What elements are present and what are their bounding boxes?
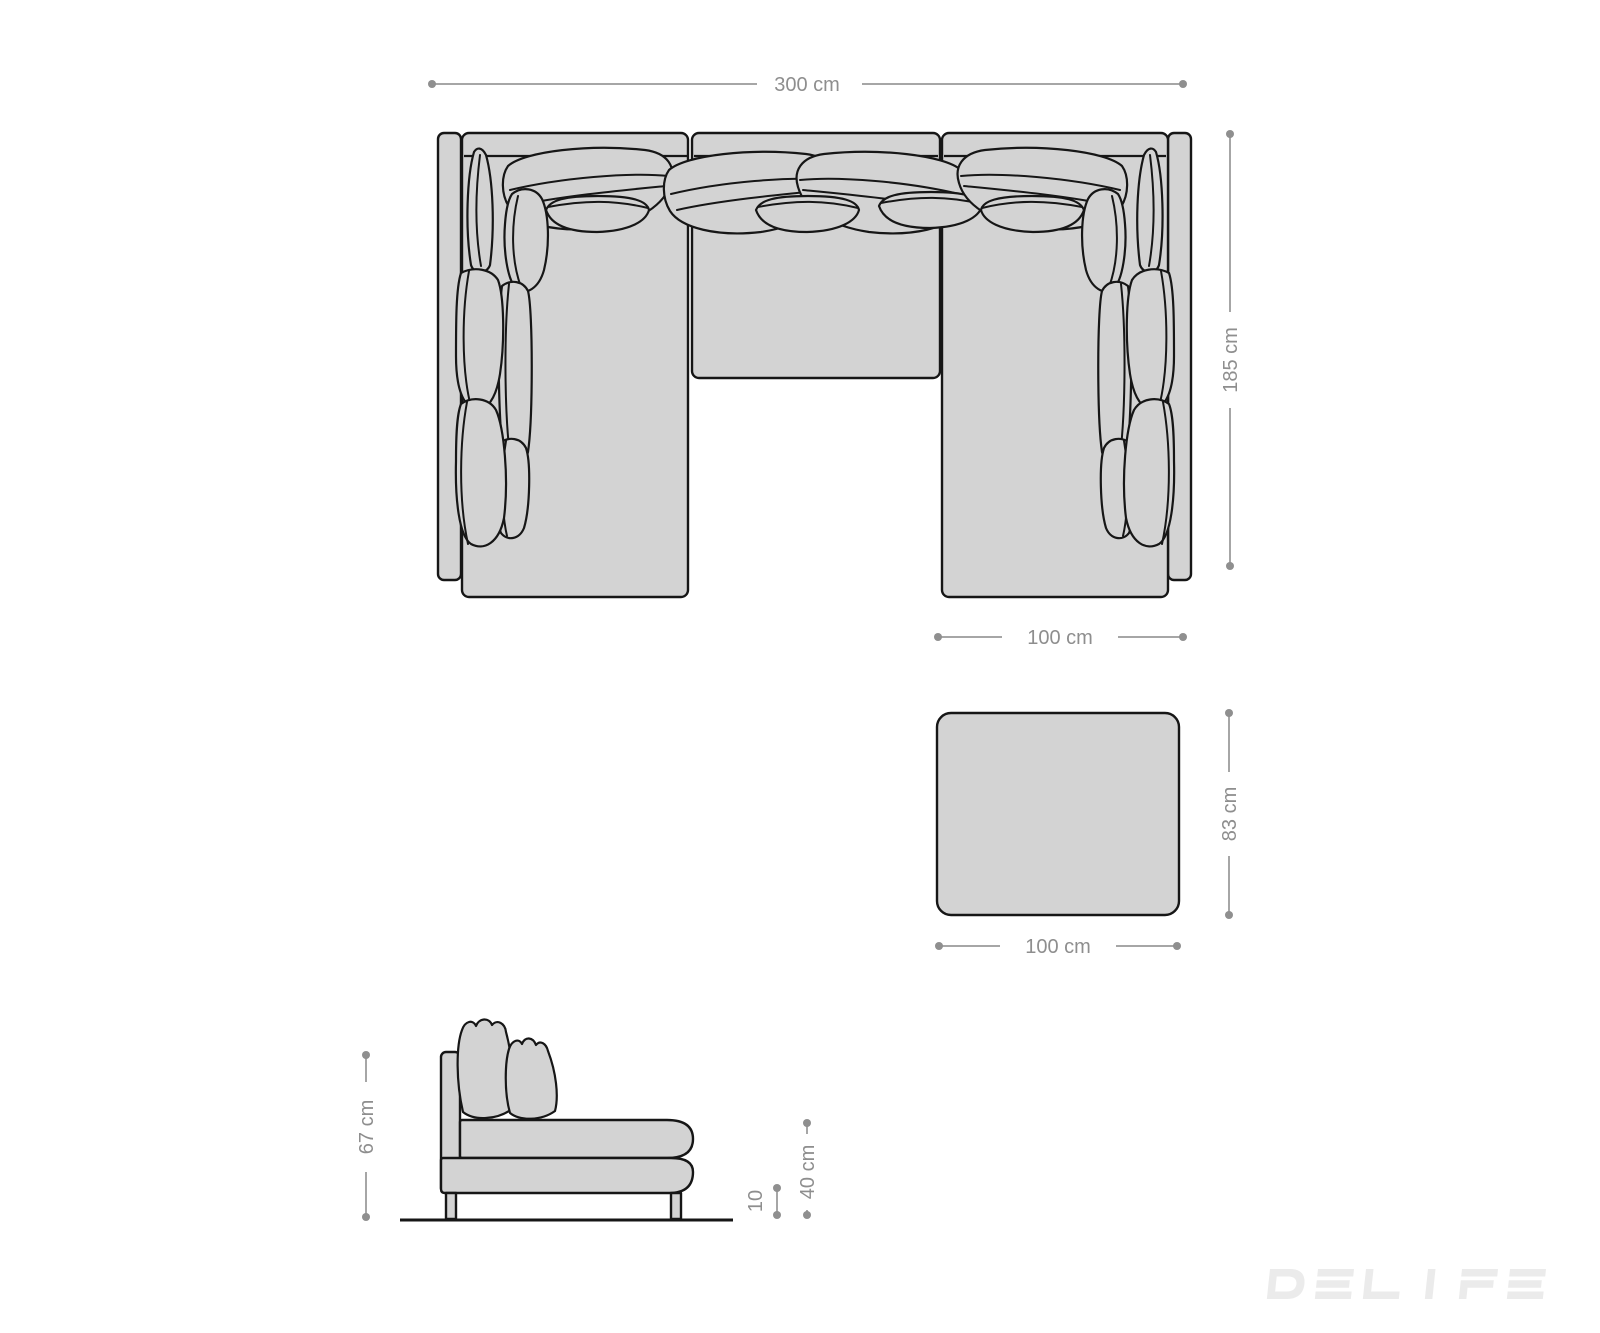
side-leg-left [446, 1193, 456, 1219]
stool-plan-view [937, 713, 1179, 915]
dim-sofa-width: 300 cm [428, 74, 1187, 96]
sofa-side-view [400, 1019, 733, 1220]
watermark-letter-e [1315, 1269, 1354, 1299]
watermark-letter-d [1267, 1269, 1306, 1299]
side-pillow-front [506, 1038, 557, 1118]
watermark-letter-e [1507, 1269, 1546, 1299]
watermark-letter-f [1459, 1269, 1498, 1299]
watermark-letter-l [1363, 1269, 1402, 1299]
dim-stool-depth: 83 cm [1219, 709, 1241, 919]
delife-watermark [1267, 1269, 1546, 1299]
dim-seat-height: 40 cm [797, 1119, 819, 1219]
dim-leg-height-label: 10 [745, 1190, 767, 1212]
side-base-frame [441, 1158, 693, 1193]
dim-stool-width-label: 100 cm [1025, 936, 1091, 958]
dim-sofa-depth-label: 185 cm [1220, 327, 1242, 393]
side-leg-right [671, 1193, 681, 1219]
dim-sofa-depth: 185 cm [1220, 130, 1242, 570]
dimension-diagram-page: 300 cm 185 cm 100 cm 83 cm 100 cm [0, 0, 1600, 1333]
dim-total-height: 67 cm [356, 1051, 378, 1221]
dimension-diagram: 300 cm 185 cm 100 cm 83 cm 100 cm [0, 0, 1600, 1333]
pillows-middle [664, 152, 982, 234]
dim-sofa-width-label: 300 cm [774, 74, 840, 96]
dim-seat-height-label: 40 cm [797, 1145, 819, 1199]
dim-stool-width: 100 cm [935, 936, 1181, 958]
stool-top [937, 713, 1179, 915]
dim-total-height-label: 67 cm [356, 1100, 378, 1154]
dim-leg-height: 10 [745, 1184, 781, 1219]
dim-section-width-label: 100 cm [1027, 627, 1093, 649]
side-seat-cushion [460, 1120, 693, 1158]
watermark-letter-i [1425, 1269, 1436, 1299]
dim-section-width: 100 cm [934, 627, 1187, 649]
sofa-plan-view [438, 133, 1191, 597]
dim-stool-depth-label: 83 cm [1219, 787, 1241, 841]
